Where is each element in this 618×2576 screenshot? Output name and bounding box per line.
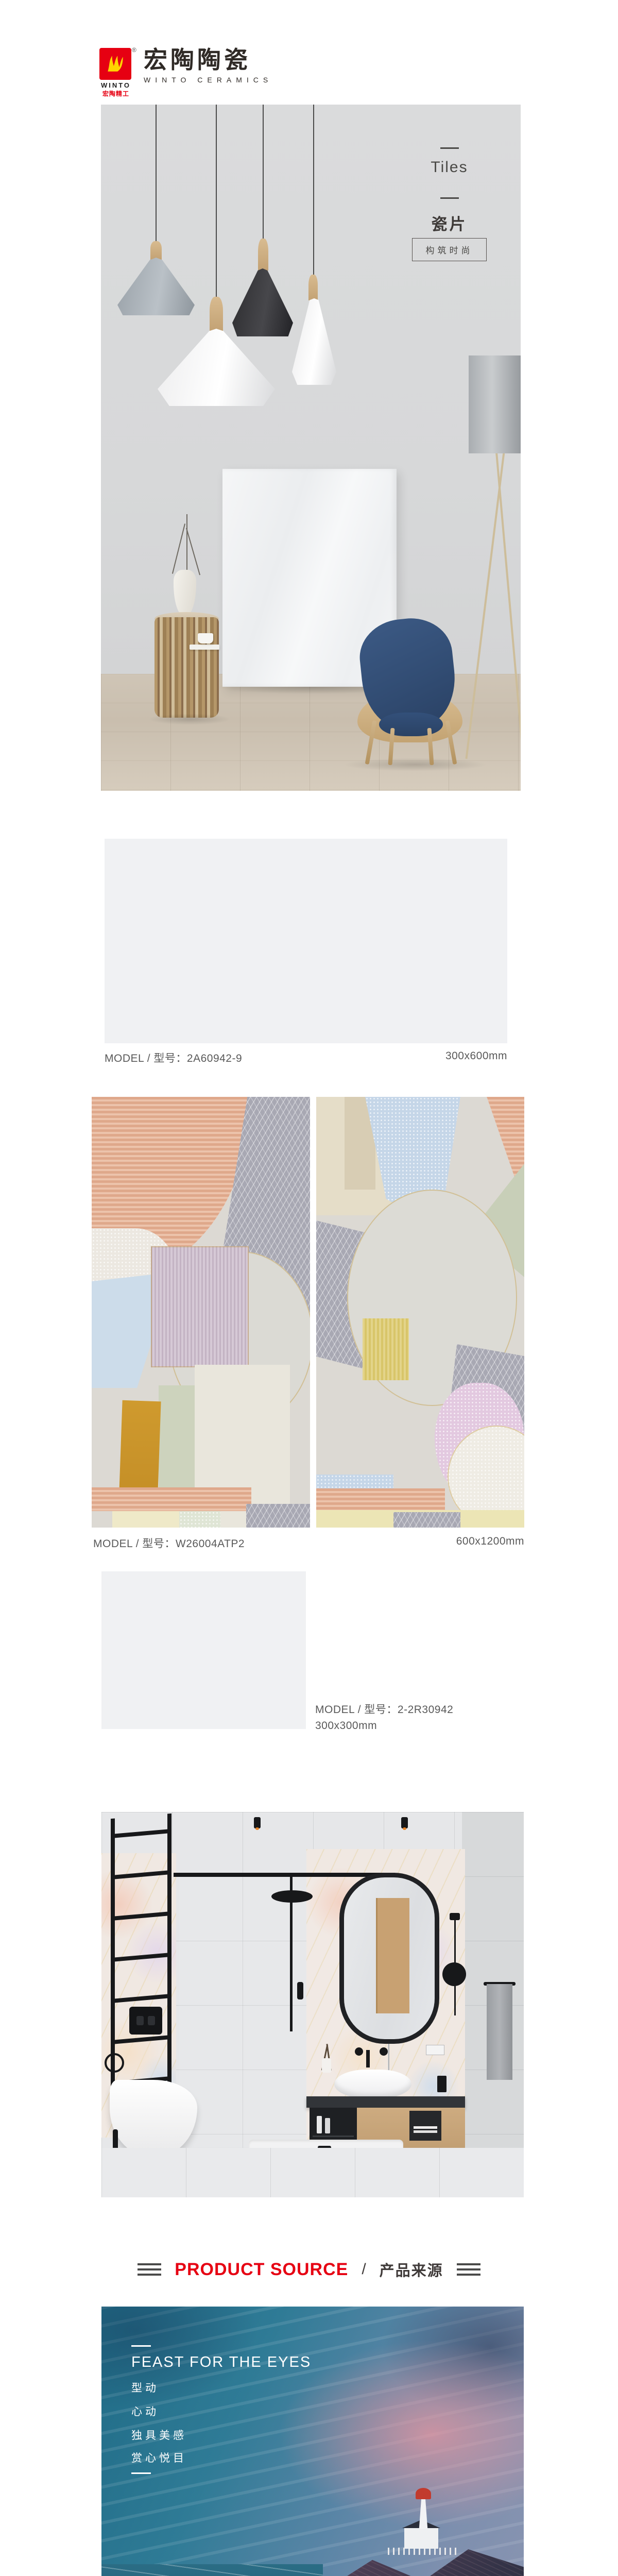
source-overlay-line: 型动 <box>131 2380 159 2395</box>
triple-bars-icon <box>138 2263 161 2276</box>
lighthouse-fence <box>388 2548 458 2555</box>
registered-mark: ® <box>132 46 136 54</box>
brand-name-en: WINTO CERAMICS <box>144 76 272 84</box>
vase-branch <box>186 528 200 575</box>
spotlight-glow <box>255 1827 259 1830</box>
pendant-lamp-white-small <box>292 298 336 385</box>
hero-tagline: 构筑时尚 <box>412 238 487 261</box>
logo-mark-cn: 宏陶精工 <box>99 89 132 98</box>
source-section-header: PRODUCT SOURCE / 产品来源 <box>0 2259 618 2280</box>
product-image-2-left <box>92 1097 310 1528</box>
divider-dash <box>440 197 459 199</box>
pendant-lamp-neck <box>150 241 162 260</box>
hero-title-cn: 瓷片 <box>412 211 487 234</box>
chair-shadow <box>343 758 487 771</box>
product-size-1: 300x600mm <box>105 1050 507 1062</box>
source-overlay-line: 赏心悦目 <box>131 2450 187 2465</box>
candle <box>437 2076 447 2092</box>
lighthouse-ocean-image: FEAST FOR THE EYES 型动 心动 独具美感 赏心悦目 <box>101 2307 524 2576</box>
sconce-disc <box>442 1962 466 1986</box>
product-image-3 <box>101 1571 306 1729</box>
source-overlay-line: 心动 <box>131 2403 159 2419</box>
lighthouse-house <box>404 2527 438 2549</box>
vase-branch <box>186 514 187 575</box>
hero-scene-image <box>101 105 521 791</box>
chair-seat-cushion <box>379 713 443 736</box>
vanity-counter <box>306 2096 465 2108</box>
vase-branch <box>172 523 185 574</box>
pendant-lamp-neck <box>258 239 268 270</box>
flush-plate <box>129 2007 162 2035</box>
winto-flame-icon <box>99 48 131 80</box>
power-outlet <box>426 2045 444 2055</box>
brand-logo: WINTO 宏陶精工 宏陶陶瓷 WINTO CERAMICS <box>99 48 272 98</box>
cabinet-open-cube <box>409 2111 441 2141</box>
source-title-divider: / <box>362 2261 366 2278</box>
lamp-cord <box>313 105 314 276</box>
diffuser-bottle <box>322 2058 331 2073</box>
divider-dash <box>131 2472 151 2474</box>
sea <box>101 2564 323 2576</box>
vessel-sink <box>334 2070 411 2098</box>
pendant-lamp-neck <box>210 297 223 331</box>
brand-name-cn: 宏陶陶瓷 <box>144 48 272 72</box>
ceiling-spotlight <box>254 1817 261 1828</box>
wall-faucet-handle <box>380 2047 388 2056</box>
toilet-paper-holder <box>105 2053 124 2073</box>
brand-wordmark: 宏陶陶瓷 WINTO CERAMICS <box>144 48 272 98</box>
source-overlay-line: 独具美感 <box>131 2427 187 2443</box>
lighthouse-cap <box>416 2488 431 2499</box>
pendant-lamp-gray <box>117 258 195 315</box>
bathroom-scene-image <box>101 1812 524 2197</box>
pendant-lamp-white-large <box>158 329 275 406</box>
shower-glass-rail <box>174 1873 395 1877</box>
stool-shadow <box>148 714 231 725</box>
pendant-lamp-black <box>232 268 293 336</box>
pendant-lamp-neck <box>308 275 318 300</box>
product-size-3: 300x300mm <box>315 1720 377 1732</box>
divider-dash <box>131 2345 151 2347</box>
oval-mirror <box>339 1873 439 2044</box>
product-image-2-right <box>316 1097 524 1528</box>
wood-stool <box>154 617 219 718</box>
book <box>190 645 219 650</box>
lamp-cord <box>263 105 264 239</box>
divider-dash <box>440 147 459 149</box>
wall-faucet-spout <box>366 2050 370 2067</box>
source-title-cn: 产品来源 <box>380 2259 443 2280</box>
page: WINTO 宏陶精工 宏陶陶瓷 WINTO CERAMICS ® <box>0 0 618 2576</box>
gray-towel <box>487 1984 512 2080</box>
logo-mark-en: WINTO <box>99 81 132 89</box>
lamp-cord <box>156 105 157 242</box>
hero-title-en: Tiles <box>412 159 487 176</box>
ceiling-spotlight <box>401 1817 408 1828</box>
source-title-en: PRODUCT SOURCE <box>175 2260 348 2280</box>
product-size-2: 600x1200mm <box>93 1535 524 1548</box>
product-image-1 <box>105 839 507 1043</box>
mirror-reflection-door <box>376 1898 409 2013</box>
floor-lamp-shade <box>469 355 521 453</box>
product-model-3: MODEL / 型号：2-2R30942 <box>315 1701 453 1717</box>
triple-bars-icon <box>457 2263 480 2276</box>
bathroom-floor <box>101 2148 524 2197</box>
vase <box>174 570 196 616</box>
brand-mark: WINTO 宏陶精工 <box>99 48 132 98</box>
hand-shower <box>297 1982 303 1999</box>
wall-faucet-handle <box>355 2047 363 2056</box>
sconce-top <box>450 1913 460 1920</box>
lamp-cord <box>216 105 217 298</box>
source-overlay-heading: FEAST FOR THE EYES <box>131 2354 311 2371</box>
spotlight-glow <box>403 1827 406 1830</box>
coffee-cup <box>198 633 213 643</box>
shower-head <box>271 1890 313 1903</box>
flame-w-glyph <box>105 53 126 75</box>
